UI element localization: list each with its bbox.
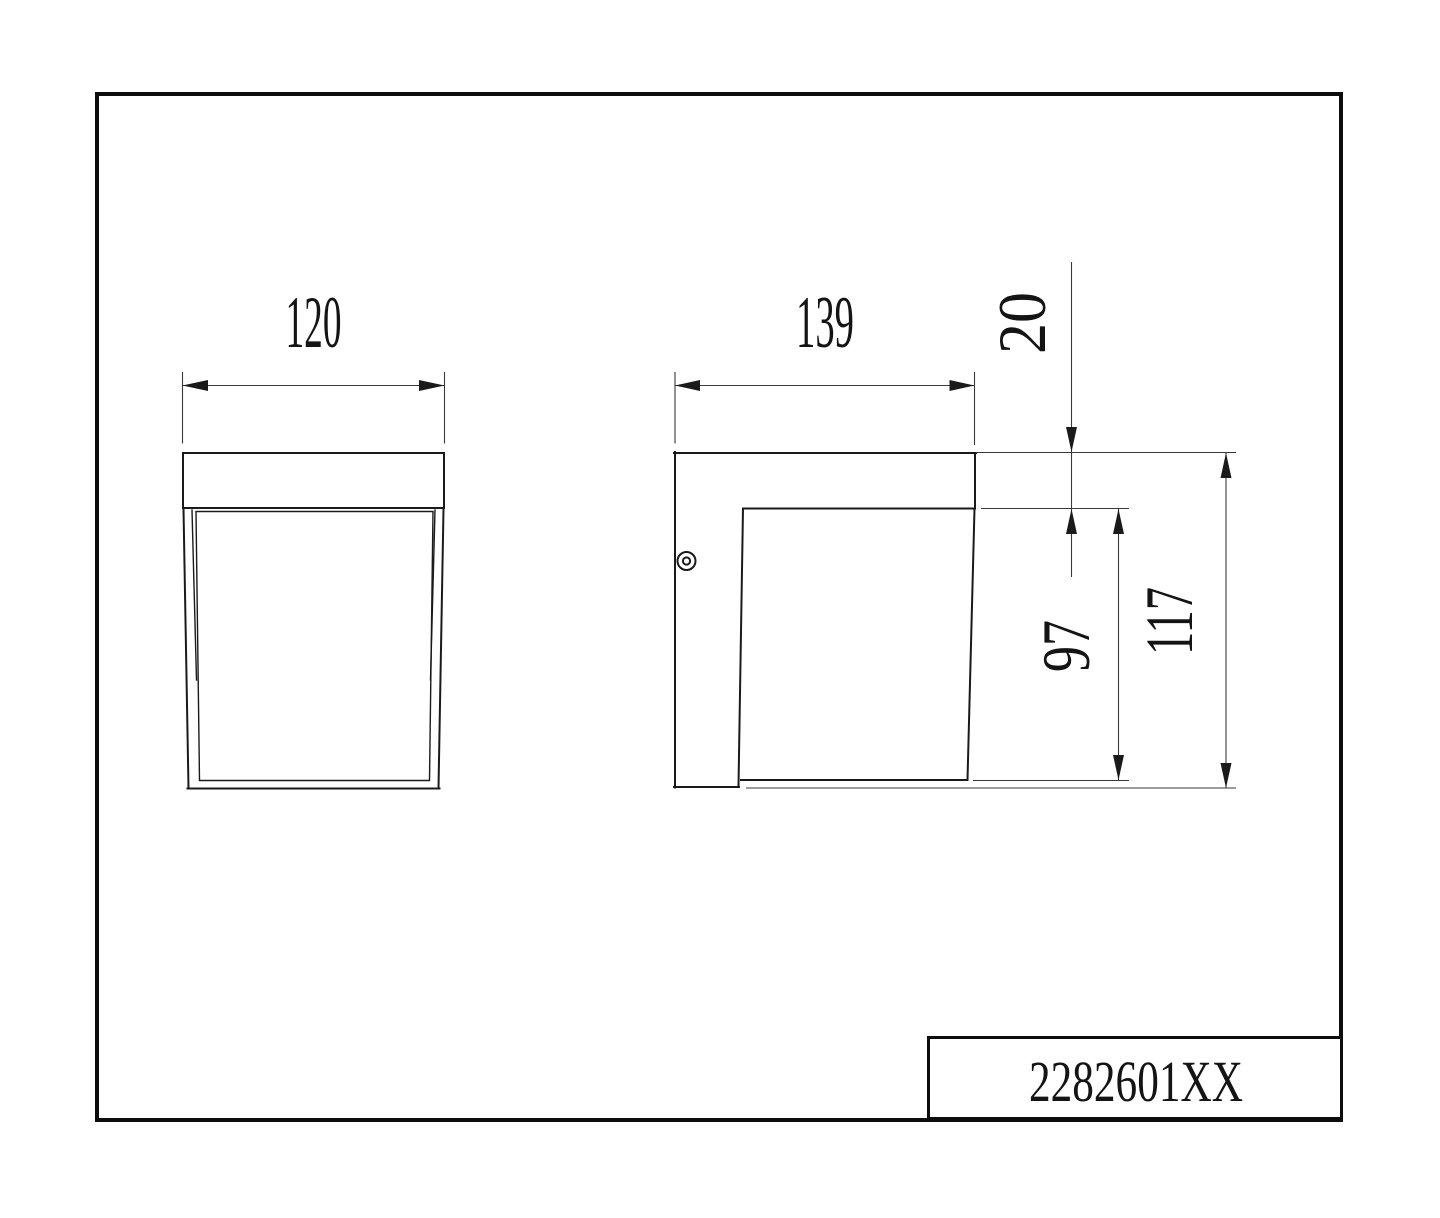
screw-hole-icon	[678, 552, 696, 570]
arrowhead-down-icon	[1066, 427, 1077, 452]
total-height-dimension-label: 117	[1131, 587, 1207, 655]
arrowhead-right-icon	[950, 380, 975, 391]
side-view-body	[739, 509, 975, 787]
depth-dimension: 139	[675, 282, 975, 445]
arrowhead-up-icon	[1066, 509, 1077, 534]
arrowhead-left-icon	[183, 380, 209, 391]
width-dimension-label: 120	[286, 282, 342, 364]
body-height-dimension: 97	[1028, 509, 1124, 780]
body-height-dimension-label: 97	[1028, 620, 1104, 672]
part-number: 2282601XX	[1029, 1049, 1243, 1114]
cap-height-dimension: 20	[984, 262, 1077, 577]
cap-height-dimension-label: 20	[984, 292, 1060, 354]
arrowhead-up-icon	[1113, 509, 1124, 534]
total-height-dimension: 117	[1131, 453, 1232, 788]
arrowhead-right-icon	[419, 380, 445, 391]
arrowhead-left-icon	[675, 380, 700, 391]
technical-drawing: 120	[0, 0, 1440, 1218]
front-view-diffuser	[196, 512, 433, 781]
side-view-wall-plate	[674, 452, 739, 788]
width-dimension: 120	[183, 282, 445, 444]
front-view	[183, 453, 444, 789]
drawing-sheet: 120	[0, 0, 1440, 1218]
side-view	[674, 452, 976, 788]
arrowhead-up-icon	[1221, 453, 1232, 478]
depth-dimension-label: 139	[796, 282, 854, 364]
title-block: 2282601XX	[929, 1038, 1342, 1119]
front-view-cap	[183, 453, 444, 508]
side-view-cap	[674, 453, 976, 509]
arrowhead-down-icon	[1113, 755, 1124, 780]
arrowhead-down-icon	[1221, 763, 1232, 788]
front-view-shade	[184, 509, 444, 789]
